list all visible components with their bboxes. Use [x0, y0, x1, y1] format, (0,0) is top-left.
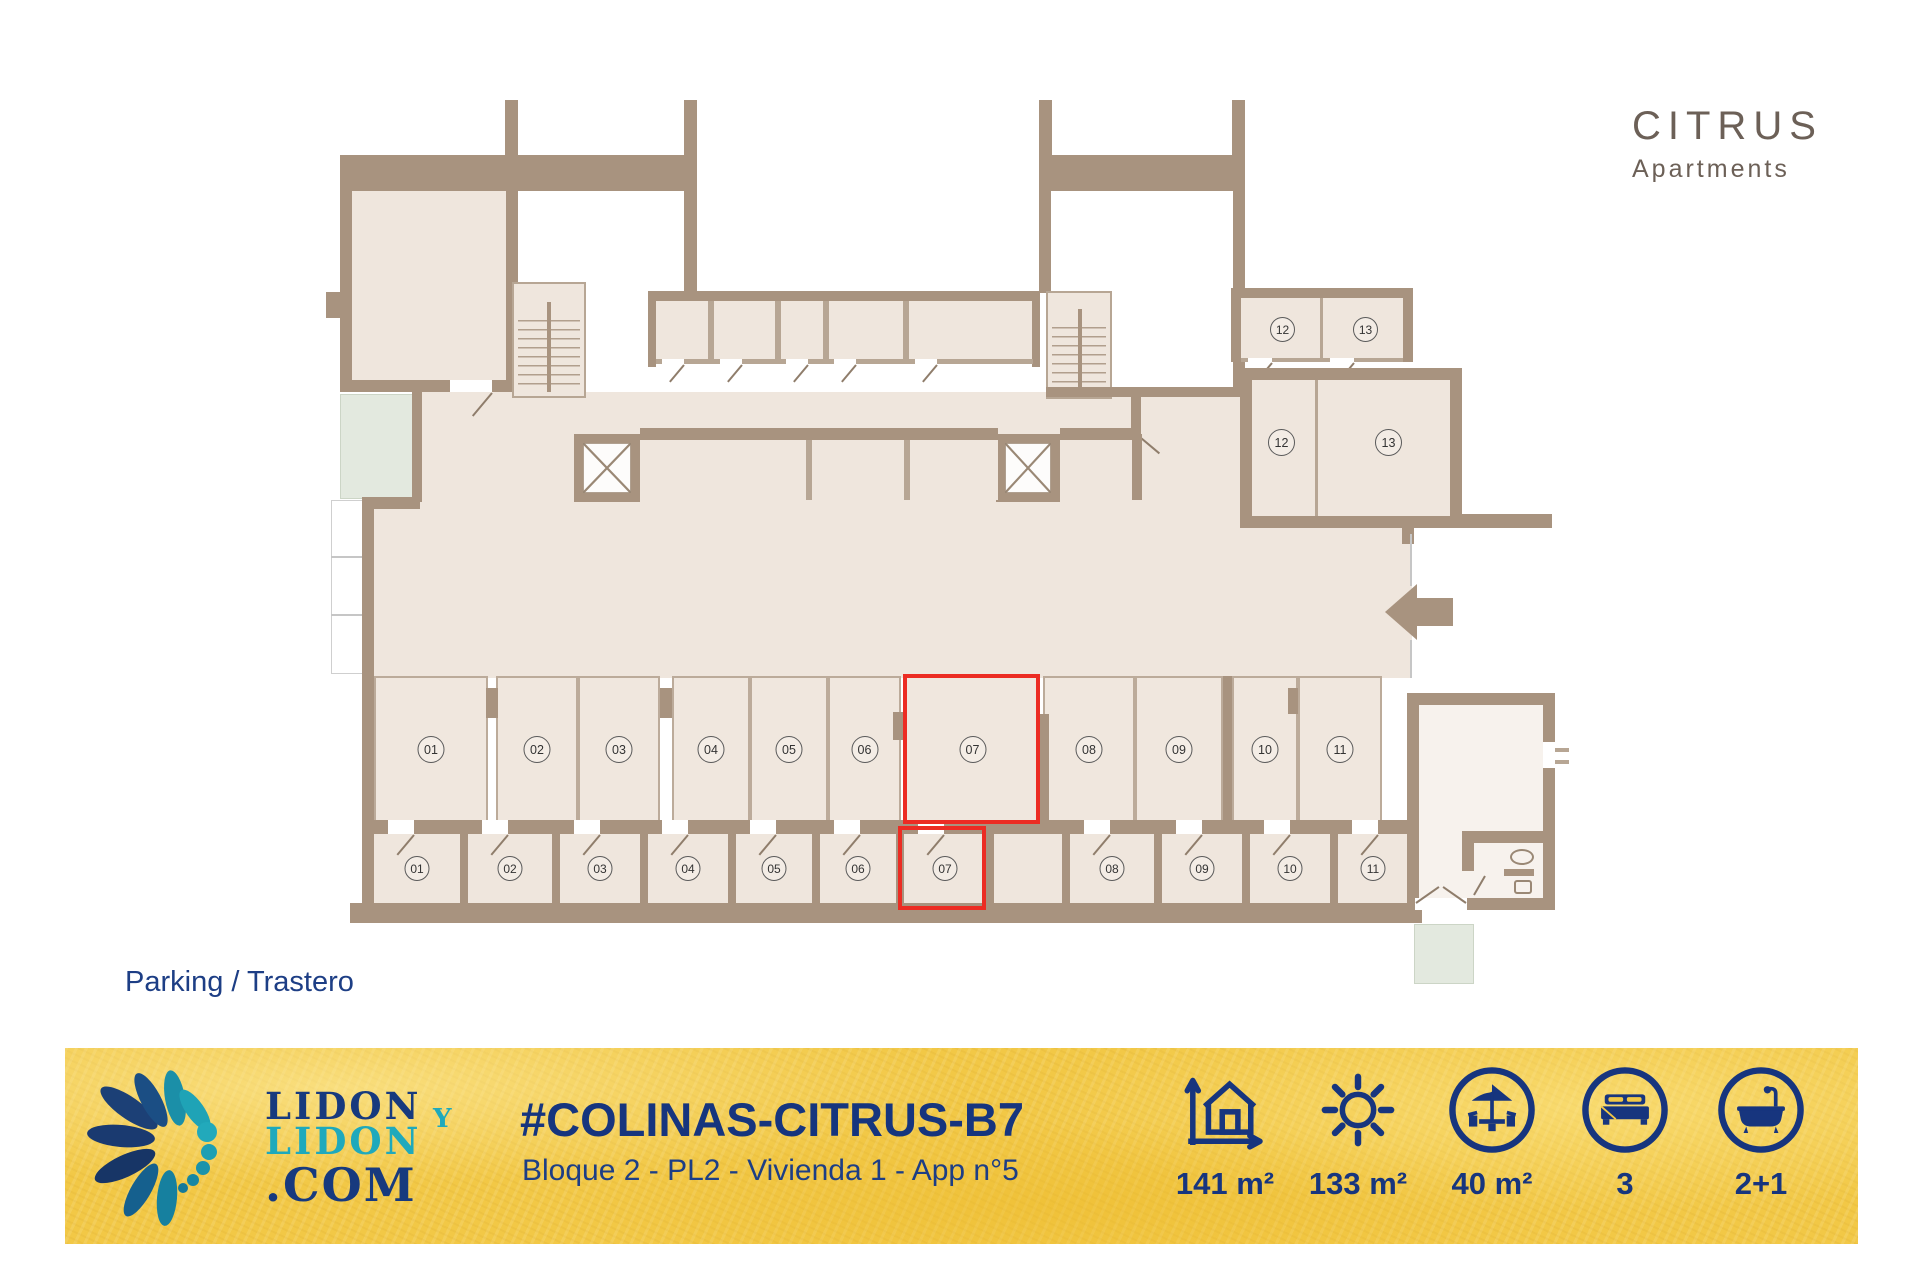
wall [362, 676, 374, 923]
stat-bathrooms: 2+1 [1694, 1062, 1828, 1202]
parking-spot: 08 [1043, 676, 1135, 822]
wall [1039, 100, 1052, 157]
parking-spot: 05 [750, 676, 828, 822]
wall [1462, 514, 1552, 528]
stat-bedrooms: 3 [1558, 1062, 1692, 1202]
shelf [1504, 869, 1534, 876]
floor-area-icon [1158, 1062, 1292, 1158]
door-opening [1352, 820, 1378, 834]
lidon-wordmark: LIDON Y LIDON .COM [265, 1088, 421, 1208]
ramp-line [331, 614, 365, 616]
wall [1555, 760, 1569, 764]
storage-room-large [352, 191, 506, 382]
parking-spot: 09 [1135, 676, 1223, 822]
wall [823, 301, 829, 363]
wall [684, 100, 697, 157]
storage-room: 02 [468, 834, 552, 904]
wall [1462, 843, 1474, 871]
opening-line [1410, 640, 1412, 678]
bedrooms-icon [1558, 1062, 1692, 1158]
wall [1462, 831, 1543, 843]
room-number: 13 [1375, 429, 1402, 456]
stat-sun-terrace: 133 m² [1291, 1062, 1425, 1202]
door-opening [1176, 820, 1202, 834]
wall [1320, 298, 1323, 362]
sun-terrace-icon [1291, 1062, 1425, 1158]
storage-room: 11 [1338, 834, 1408, 904]
door-opening [1084, 820, 1110, 834]
wall [1232, 100, 1245, 157]
door-opening [1330, 358, 1354, 362]
elevator [996, 434, 1060, 502]
wall [1039, 191, 1051, 293]
ramp-area [340, 394, 414, 499]
wall [362, 820, 1420, 834]
storage-room: 10 [1250, 834, 1330, 904]
storage-room: 08 [1070, 834, 1154, 904]
storage-room: 06 [820, 834, 896, 904]
door-leaf [841, 364, 857, 382]
parking-spot: 03 [578, 676, 660, 822]
wall [1330, 834, 1338, 904]
wall [903, 301, 909, 363]
door-opening [720, 359, 742, 364]
parking-spot: 06 [828, 676, 901, 822]
wall [1402, 516, 1414, 544]
wall [1231, 288, 1241, 362]
footer-banner: LIDON Y LIDON .COM #COLINAS-CITRUS-B7 Bl… [65, 1048, 1858, 1244]
wall [708, 301, 714, 363]
wall [505, 100, 518, 157]
stat-value: 133 m² [1291, 1166, 1425, 1202]
brand-name: CITRUS [1632, 104, 1823, 149]
wall [1154, 834, 1162, 904]
room-number: 12 [1270, 317, 1295, 342]
door-opening [662, 820, 688, 834]
parking-spot: 04 [672, 676, 750, 822]
wall [1315, 380, 1318, 516]
wall [775, 301, 781, 363]
wall [1543, 693, 1555, 910]
wall [412, 392, 422, 502]
stairwell [1046, 291, 1112, 399]
bike-storage [640, 440, 998, 500]
wall [1407, 693, 1555, 705]
wall [660, 688, 672, 718]
stat-floor-area: 141 m² [1158, 1062, 1292, 1202]
wall [904, 440, 910, 500]
wall [1407, 693, 1419, 910]
door-opening [750, 820, 776, 834]
property-flyer: 12 13 12 13 01 02 03 04 05 06 07 08 09 1… [0, 0, 1920, 1280]
floor-label: Parking / Trastero [125, 966, 354, 999]
door-opening [450, 380, 492, 392]
wall [362, 497, 374, 678]
wall [1131, 397, 1141, 437]
left-arrow-icon [1385, 584, 1417, 640]
highlighted-storage-07 [898, 826, 986, 910]
storage-room-unlabeled [994, 834, 1062, 904]
wall [1231, 288, 1413, 298]
wall [552, 834, 560, 904]
door-opening [1264, 820, 1290, 834]
door-opening [1248, 358, 1272, 362]
citrus-logo: CITRUS Apartments [1632, 104, 1823, 184]
covered-terrace-icon [1425, 1062, 1559, 1158]
parking-spot: 11 [1298, 676, 1382, 822]
wall [728, 834, 736, 904]
wall [340, 155, 697, 191]
service-room [1060, 440, 1132, 500]
wall [1039, 155, 1245, 191]
lidon-logo-icon [79, 1060, 251, 1232]
wall [640, 834, 648, 904]
wordmark-line2: LIDON [265, 1123, 421, 1160]
wall [806, 440, 812, 500]
wall [1288, 688, 1298, 714]
wall [1242, 834, 1250, 904]
wall [640, 428, 998, 440]
wall [326, 292, 340, 318]
door-opening [915, 359, 937, 364]
wall [1060, 428, 1132, 440]
wall [460, 834, 468, 904]
door-opening [1543, 742, 1555, 768]
wall [1032, 291, 1040, 367]
exit-ramp [1414, 924, 1474, 984]
brand-tagline: Apartments [1632, 155, 1823, 184]
door-leaf [922, 364, 938, 382]
door-opening [574, 820, 600, 834]
wall [1223, 676, 1232, 822]
wall [812, 834, 820, 904]
parking-spot: 02 [496, 676, 578, 822]
wall [486, 688, 498, 718]
door-opening [834, 820, 860, 834]
storage-room: 05 [736, 834, 812, 904]
wall [350, 903, 1422, 923]
wall [648, 291, 656, 367]
room-number: 13 [1353, 317, 1378, 342]
stat-value: 3 [1558, 1166, 1692, 1202]
stairwell [512, 282, 586, 398]
door-opening [786, 359, 808, 364]
stat-value: 141 m² [1158, 1166, 1292, 1202]
wall [1403, 288, 1413, 362]
bathrooms-icon [1694, 1062, 1828, 1158]
room-number: 12 [1268, 429, 1295, 456]
wordmark-connector: Y [433, 1106, 452, 1132]
storage-room: 01 [374, 834, 460, 904]
opening-line [1410, 534, 1412, 586]
listing-details: Bloque 2 - PL2 - Vivienda 1 - App n°5 [522, 1154, 1019, 1188]
highlighted-parking-07 [903, 674, 1040, 824]
wall [340, 155, 352, 392]
elevator [574, 434, 640, 502]
toilet-icon [1514, 880, 1532, 894]
wall [684, 191, 697, 291]
parking-spot: 01 [374, 676, 488, 822]
door-opening [662, 359, 684, 364]
left-arrow-icon [1417, 598, 1453, 626]
door-leaf [669, 364, 685, 382]
storage-room: 09 [1162, 834, 1242, 904]
wall [1046, 387, 1245, 397]
door-leaf [793, 364, 809, 382]
wall [1555, 748, 1569, 752]
wall [648, 291, 1040, 301]
listing-code: #COLINAS-CITRUS-B7 [520, 1092, 1024, 1147]
stat-covered-terrace: 40 m² [1425, 1062, 1559, 1202]
stat-value: 2+1 [1694, 1166, 1828, 1202]
ramp-line [331, 556, 365, 558]
storage-room: 04 [648, 834, 728, 904]
wall [1132, 434, 1142, 500]
storage-room: 03 [560, 834, 640, 904]
stat-value: 40 m² [1425, 1166, 1559, 1202]
wordmark-line3: .COM [265, 1162, 421, 1208]
wall [1062, 834, 1070, 904]
door-leaf [727, 364, 743, 382]
sink-icon [1510, 849, 1534, 865]
door-opening [834, 359, 856, 364]
wall [986, 834, 994, 904]
door-opening [482, 820, 508, 834]
door-opening [388, 820, 414, 834]
